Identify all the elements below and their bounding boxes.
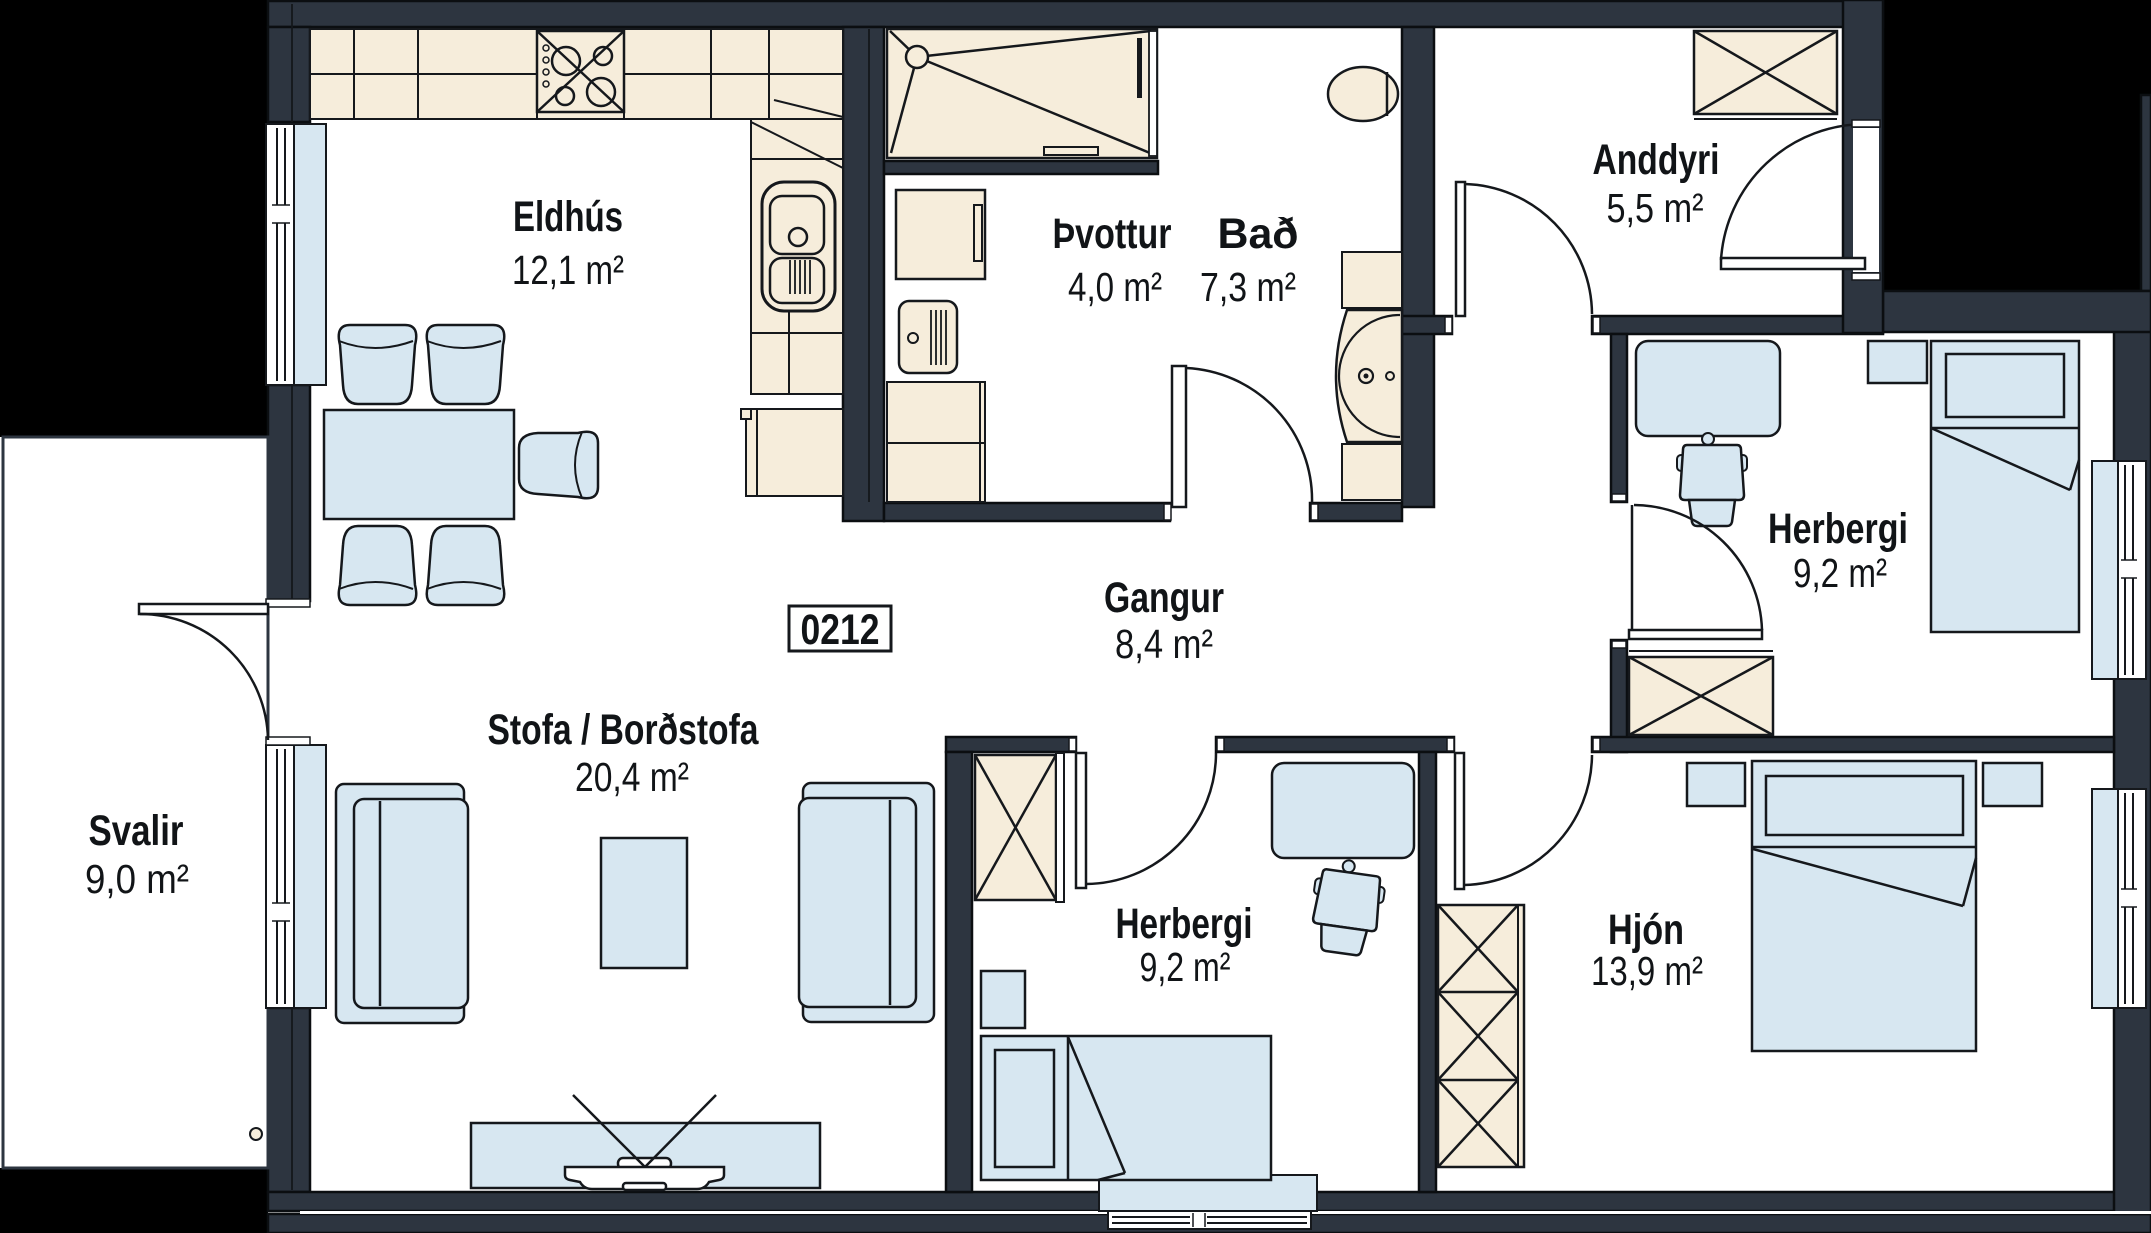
- svg-text:Þvottur: Þvottur: [1053, 210, 1172, 258]
- svg-text:7,3 m²: 7,3 m²: [1200, 264, 1296, 310]
- svg-text:9,2 m²: 9,2 m²: [1793, 550, 1887, 596]
- svg-text:Herbergi: Herbergi: [1116, 900, 1253, 948]
- svg-text:4,0 m²: 4,0 m²: [1068, 264, 1162, 310]
- svg-text:5,5 m²: 5,5 m²: [1607, 185, 1704, 231]
- svg-text:Bað: Bað: [1218, 210, 1299, 258]
- svg-text:9,0 m²: 9,0 m²: [85, 856, 189, 902]
- svg-text:20,4 m²: 20,4 m²: [575, 754, 689, 800]
- svg-text:13,9 m²: 13,9 m²: [1591, 948, 1703, 994]
- svg-text:Hjón: Hjón: [1608, 906, 1684, 954]
- svg-text:8,4 m²: 8,4 m²: [1115, 621, 1213, 667]
- svg-text:Gangur: Gangur: [1104, 574, 1224, 622]
- svg-text:Eldhús: Eldhús: [513, 193, 623, 241]
- svg-text:Svalir: Svalir: [89, 807, 184, 855]
- svg-text:Herbergi: Herbergi: [1768, 505, 1908, 553]
- svg-text:Anddyri: Anddyri: [1593, 136, 1720, 184]
- svg-text:9,2 m²: 9,2 m²: [1140, 944, 1231, 990]
- svg-text:0212: 0212: [801, 606, 880, 654]
- svg-text:Stofa / Borðstofa: Stofa / Borðstofa: [488, 706, 760, 754]
- svg-text:12,1 m²: 12,1 m²: [512, 247, 624, 293]
